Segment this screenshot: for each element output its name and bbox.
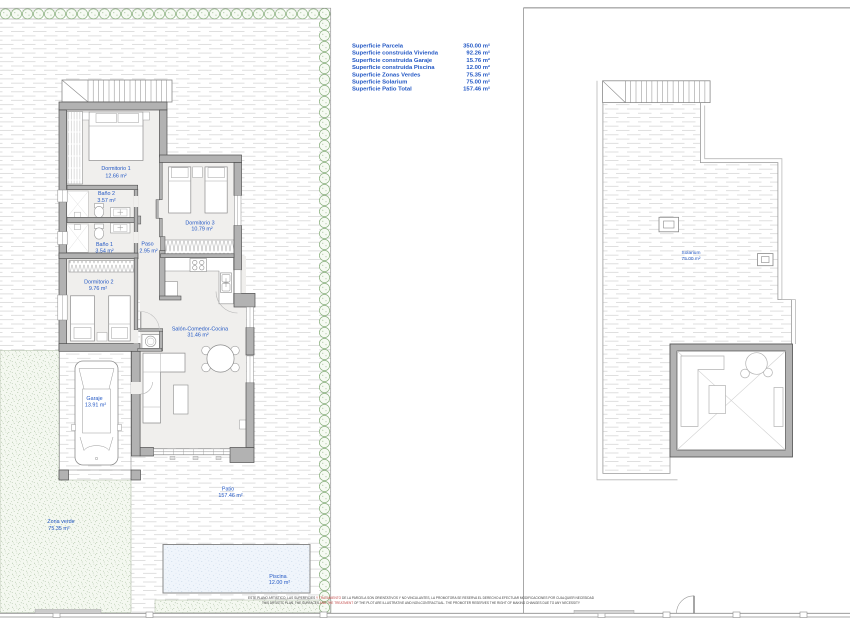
svg-text:157.46 m²: 157.46 m² [463, 86, 490, 93]
svg-text:12.00 m²: 12.00 m² [466, 64, 490, 71]
svg-text:ESTE PLANO ARTISTICO, LAS SUPE: ESTE PLANO ARTISTICO, LAS SUPERFICIES Y … [248, 596, 594, 600]
svg-text:12.00 m²: 12.00 m² [269, 580, 290, 586]
svg-text:15.76 m²: 15.76 m² [466, 57, 490, 64]
svg-text:Zona verde: Zona verde [47, 519, 74, 525]
svg-text:Superficie Zonas Verdes: Superficie Zonas Verdes [352, 72, 421, 78]
svg-text:3.54 m²: 3.54 m² [95, 249, 113, 255]
svg-text:75.00 m²: 75.00 m² [682, 256, 701, 262]
svg-text:2.95 m²: 2.95 m² [139, 249, 157, 255]
svg-text:Patio: Patio [222, 487, 234, 493]
svg-text:10.79 m²: 10.79 m² [191, 227, 212, 233]
svg-text:Baño 1: Baño 1 [96, 242, 113, 248]
svg-text:Superficie construida Garaje: Superficie construida Garaje [352, 58, 433, 64]
svg-text:31.46 m²: 31.46 m² [187, 333, 208, 339]
svg-text:Superficie construida Vivienda: Superficie construida Vivienda [352, 51, 439, 57]
svg-text:Solarium: Solarium [682, 250, 701, 256]
svg-text:Superficie construida Piscina: Superficie construida Piscina [352, 65, 435, 71]
svg-text:Superficie Parcela: Superficie Parcela [352, 44, 404, 50]
svg-text:75.35 m²: 75.35 m² [466, 71, 490, 78]
svg-text:75.35 m²: 75.35 m² [48, 526, 69, 532]
svg-text:Superficie Solarium: Superficie Solarium [352, 80, 407, 86]
svg-text:Baño 2: Baño 2 [98, 191, 115, 197]
svg-text:9.76 m²: 9.76 m² [89, 286, 107, 292]
svg-text:Garaje: Garaje [86, 396, 102, 402]
svg-text:350.00 m²: 350.00 m² [463, 43, 490, 50]
svg-text:92.26 m²: 92.26 m² [466, 50, 490, 57]
svg-text:THIS ARTISTIC PLAN, THE SURFAC: THIS ARTISTIC PLAN, THE SURFACES AND THE… [262, 601, 581, 605]
svg-text:Paso: Paso [141, 242, 153, 248]
svg-text:Dormitorio 2: Dormitorio 2 [84, 280, 113, 286]
svg-text:Dormitorio 1: Dormitorio 1 [101, 166, 130, 172]
svg-text:12.66 m²: 12.66 m² [105, 174, 126, 180]
svg-text:3.57 m²: 3.57 m² [97, 198, 115, 204]
svg-text:Superficie Patio Total: Superficie Patio Total [352, 87, 412, 93]
svg-text:13.91 m²: 13.91 m² [85, 403, 106, 409]
svg-text:157.46 m²: 157.46 m² [218, 493, 242, 499]
svg-text:75.00 m²: 75.00 m² [466, 79, 490, 86]
